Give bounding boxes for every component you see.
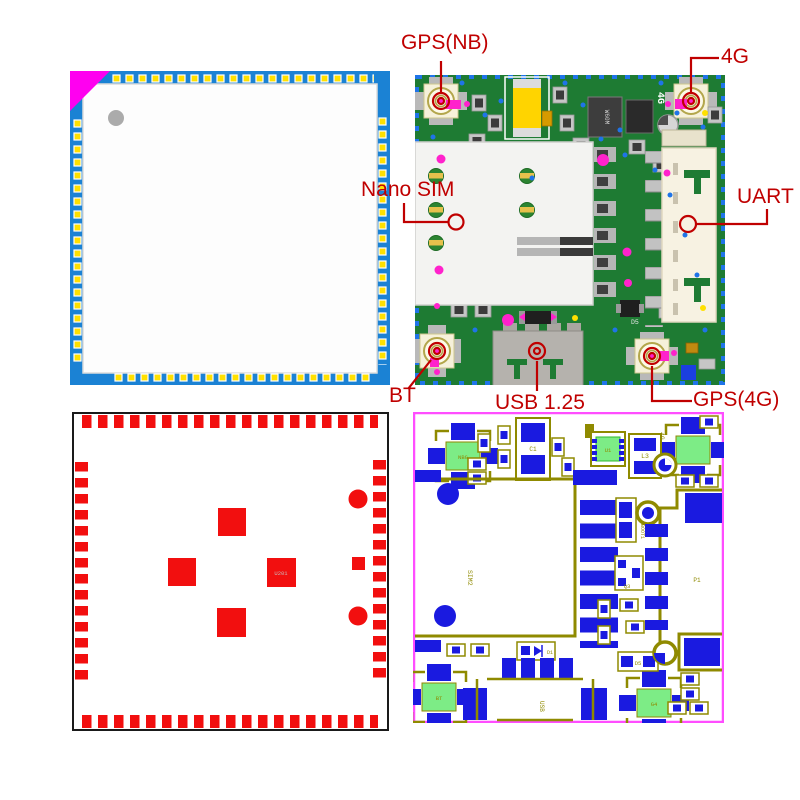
svg-text:L3: L3 (641, 453, 649, 460)
layout-d5: D5 (618, 652, 658, 671)
layout-oscillator (654, 454, 676, 476)
label-gps-4g: GPS(4G) (693, 388, 779, 411)
svg-text:D1: D1 (547, 650, 553, 656)
svg-text:SIM2: SIM2 (466, 570, 473, 586)
label-gps-nb: GPS(NB) (401, 31, 489, 54)
module-product-image: W60M (0, 0, 800, 800)
module-footprint-view: U201 (72, 412, 389, 731)
smd-diode (519, 311, 557, 324)
layout-c1: C1 (516, 418, 550, 480)
fiducial-dot (502, 314, 514, 326)
module-top-view (70, 71, 390, 385)
ic-marking: W60M (603, 110, 610, 125)
sim-side-pads (594, 147, 616, 309)
svg-text:BOOT1: BOOT1 (639, 524, 645, 539)
svg-text:USB: USB (538, 701, 545, 712)
svg-text:U1: U1 (605, 447, 612, 454)
label-usb: USB 1.25 (495, 391, 585, 414)
layout-big-pad-br (679, 634, 722, 670)
uart-connector (645, 130, 716, 327)
layout-d1: D1 (517, 642, 555, 660)
silk-d5: D5 (631, 319, 639, 326)
svg-text:NBG: NBG (458, 454, 468, 461)
label-bt: BT (389, 384, 416, 407)
pcb-layout-view: NBG 4G BT G4 C1 (413, 412, 724, 723)
footprint-outline (73, 413, 388, 730)
silk-4g: 4G (654, 92, 665, 104)
label-nano-sim: Nano SIM (361, 178, 454, 201)
usb-connector (493, 323, 583, 385)
transistor (616, 300, 644, 317)
module-shield-lid (83, 84, 377, 373)
pcb-top-view: W60M (415, 75, 725, 385)
layout-q3: Q3 (615, 556, 643, 590)
svg-text:P1: P1 (693, 577, 701, 584)
rf-ic: W60M (588, 97, 622, 137)
svg-text:Q3: Q3 (624, 583, 631, 590)
pin1-dot (108, 110, 124, 126)
label-4g: 4G (721, 45, 749, 68)
svg-text:C1: C1 (529, 446, 537, 453)
nano-sim-socket (415, 142, 593, 305)
layout-u1: U1 (591, 432, 625, 466)
layout-mount-ring (654, 642, 676, 664)
label-uart: UART (737, 185, 794, 208)
ref-u201: U201 (274, 570, 288, 577)
svg-text:G4: G4 (651, 701, 658, 708)
svg-text:D5: D5 (635, 660, 642, 667)
baseband-ic (626, 100, 653, 133)
svg-text:BT: BT (436, 695, 443, 702)
